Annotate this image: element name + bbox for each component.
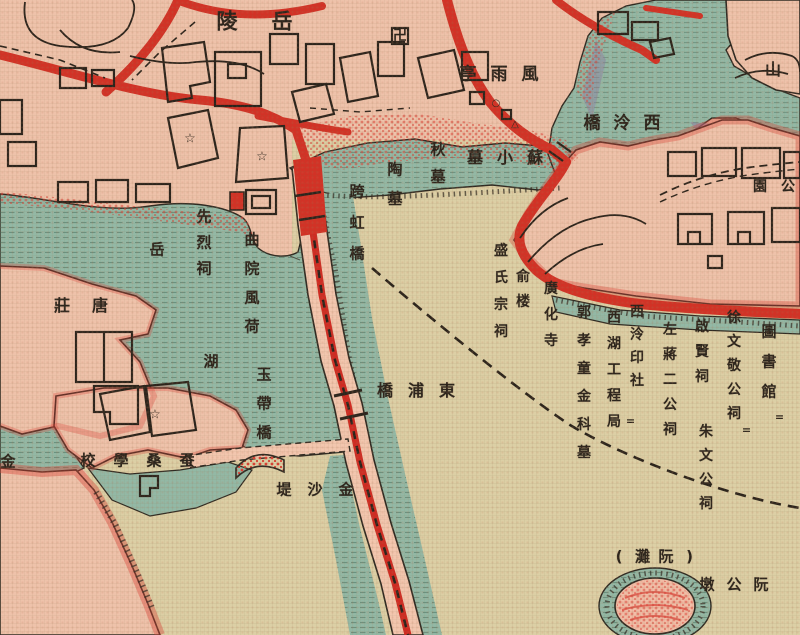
quyuan-red-pavilion [230,192,244,210]
map-canvas [0,0,800,635]
map-image: 陵岳亭雨風橋泠西山墓小蘇秋墓陶墓跨虹橋先烈祠曲院風荷岳湖莊唐玉帶橋橋浦東堤沙金校… [0,0,800,635]
